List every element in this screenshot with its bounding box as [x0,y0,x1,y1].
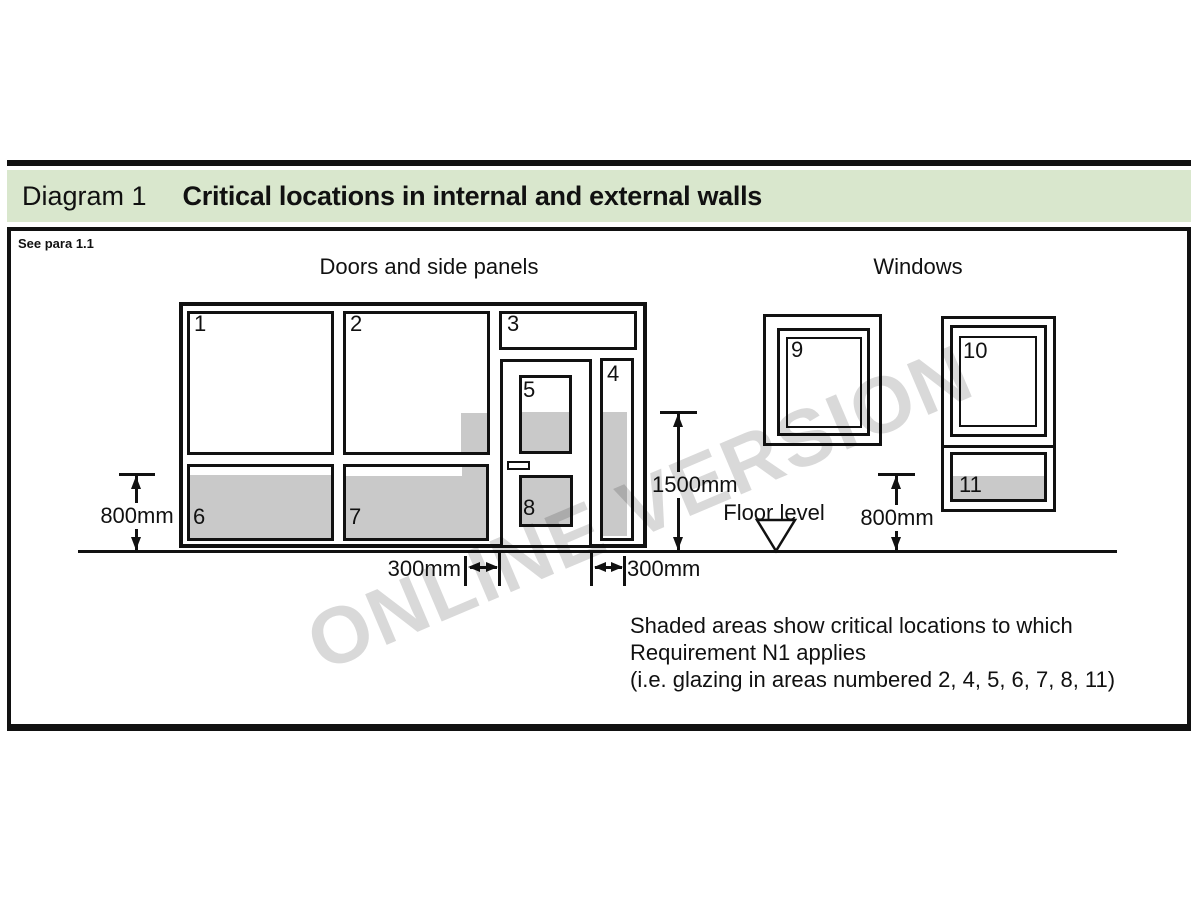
dim-1500-arrow-down [673,537,683,550]
panel-number-10: 10 [963,340,987,362]
panel-number-6: 6 [193,506,205,528]
dim-300-left-ext-line [498,551,501,586]
dim-300-left-arrow-left [468,562,480,572]
shaded-zone-panel-5 [522,412,569,451]
window-10-transom-line [944,445,1053,448]
dim-300-right-label: 300mm [627,556,717,582]
unshaded-strip-panel-6 [190,467,331,475]
panel-1 [187,311,334,455]
dim-800-left-label: 800mm [100,503,174,529]
shaded-zone-panel-4 [603,412,627,536]
dim-800-right-label: 800mm [859,505,935,531]
dim-300-right-arrow-left [594,562,606,572]
dim-300-left-label: 300mm [383,556,461,582]
panel-number-3: 3 [507,313,519,335]
panel-number-4: 4 [607,363,619,385]
panel-number-11: 11 [959,474,982,496]
caption-line-2: Requirement N1 applies [630,639,1150,666]
panel-number-2: 2 [350,313,362,335]
dim-800-right-arrow-up [891,476,901,489]
dim-300-right-arrow-right [611,562,623,572]
diagram-header-bar: Diagram 1 Critical locations in internal… [7,170,1191,222]
dim-800-left-arrow-down [131,537,141,550]
floor-level-marker-triangle [754,517,798,554]
figure-caption: Shaded areas show critical locations to … [630,612,1150,693]
caption-line-3: (i.e. glazing in areas numbered 2, 4, 5,… [630,666,1150,693]
dim-800-left-arrow-up [131,476,141,489]
dim-300-right-tick [623,556,626,586]
door-handle [507,461,530,470]
caption-line-1: Shaded areas show critical locations to … [630,612,1150,639]
floor-line [78,550,1117,553]
shaded-zone-panel-2 [461,413,487,452]
panel-number-1: 1 [194,313,206,335]
panel-number-7: 7 [349,506,361,528]
panel-number-8: 8 [523,497,535,519]
diagram-title: Critical locations in internal and exter… [183,181,762,212]
dim-300-right-ext-line [590,551,593,586]
section-heading-windows: Windows [860,254,976,280]
panel-6 [187,464,334,541]
dim-300-left-tick [464,556,467,586]
diagram-number: Diagram 1 [22,181,147,212]
section-heading-doors: Doors and side panels [318,254,540,280]
unshaded-strip-panel-7 [346,467,462,476]
panel-number-5: 5 [523,379,535,401]
see-para-note: See para 1.1 [18,236,94,251]
dim-1500-label: 1500mm [652,472,736,498]
panel-3 [499,311,637,350]
panel-number-9: 9 [791,339,803,361]
dim-300-left-arrow-right [486,562,498,572]
top-rule [7,160,1191,166]
dim-800-right-arrow-down [891,537,901,550]
dim-1500-arrow-up [673,414,683,427]
